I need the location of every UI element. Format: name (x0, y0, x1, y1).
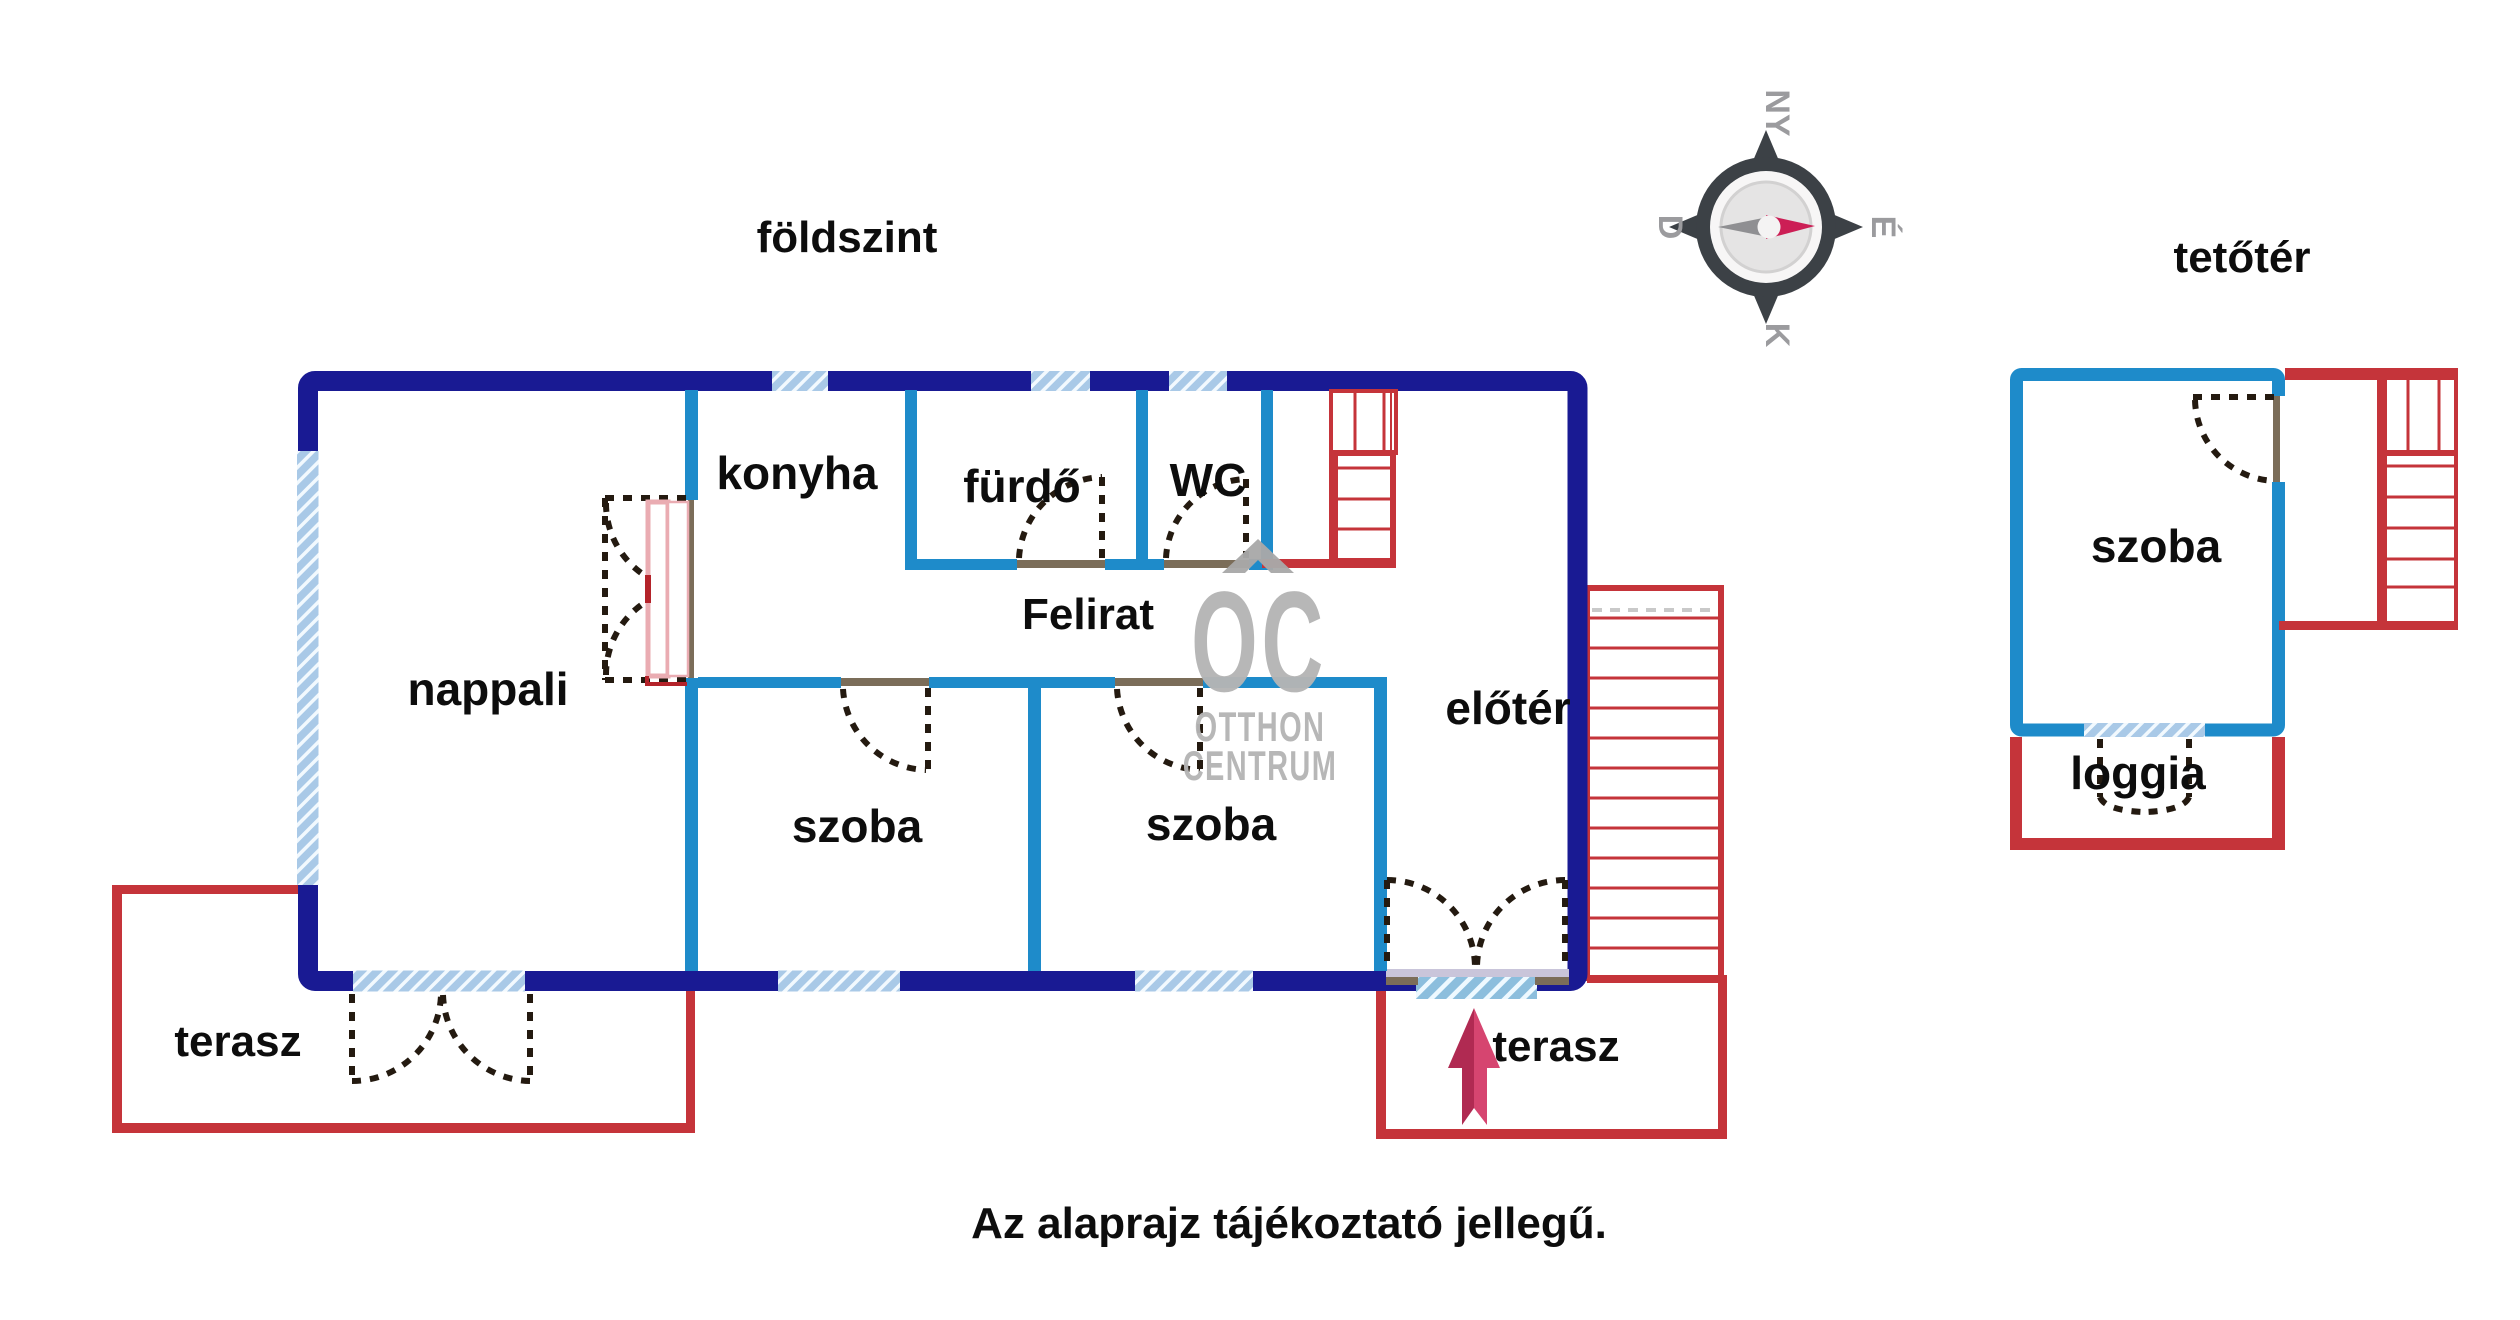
svg-text:NY: NY (1758, 89, 1796, 137)
svg-text:előtér: előtér (1445, 682, 1570, 734)
svg-text:tetőtér: tetőtér (2174, 233, 2311, 282)
svg-text:Felirat: Felirat (1022, 590, 1154, 639)
svg-text:terasz: terasz (1492, 1022, 1619, 1071)
svg-text:terasz: terasz (174, 1017, 301, 1066)
svg-text:fürdő: fürdő (963, 460, 1081, 512)
svg-text:K: K (1758, 323, 1796, 348)
svg-text:loggia: loggia (2070, 747, 2206, 799)
svg-text:D: D (1651, 215, 1689, 240)
svg-text:földszint: földszint (757, 213, 938, 262)
svg-text:CENTRUM: CENTRUM (1183, 742, 1338, 790)
svg-text:OC: OC (1191, 561, 1327, 721)
svg-text:É: É (1864, 216, 1902, 239)
svg-text:szoba: szoba (792, 800, 923, 852)
svg-text:konyha: konyha (716, 447, 877, 499)
svg-text:WC: WC (1170, 454, 1247, 506)
svg-text:Az alaprajz tájékoztató jelleg: Az alaprajz tájékoztató jellegű. (971, 1199, 1607, 1248)
svg-text:szoba: szoba (2091, 520, 2222, 572)
svg-text:nappali: nappali (407, 663, 568, 715)
svg-text:szoba: szoba (1146, 798, 1277, 850)
